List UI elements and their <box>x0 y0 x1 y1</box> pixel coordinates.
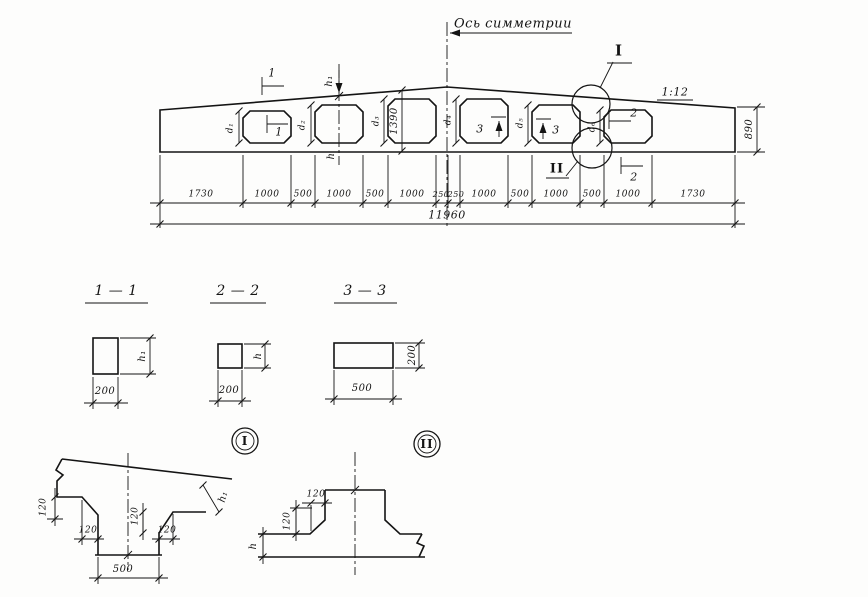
beam-drawing: Ось симметрии 1:12 I II 1 1 3 3 2 2 h₁ h… <box>0 0 868 597</box>
detail-2-break <box>417 534 424 557</box>
hole-dim-label-1: d₁ <box>227 123 236 133</box>
d2-height-label: h <box>249 543 259 550</box>
s11-width-label: 200 <box>95 387 116 397</box>
seg-dim-1: 1000 <box>255 191 280 200</box>
beam-outline-group <box>56 87 735 557</box>
mid-height-label: 1390 <box>390 107 400 134</box>
seg-dim-10: 1000 <box>544 191 569 200</box>
cut2-mark-bottom: 2 <box>630 172 638 183</box>
d2-h120-label: 120 <box>307 491 326 500</box>
section-2-2-title: 2 — 2 <box>216 284 259 298</box>
seg-dim-9: 500 <box>511 191 530 200</box>
detail-1-left-edge <box>56 459 98 555</box>
h1-dim-label: h₁ <box>325 75 335 86</box>
end-height-label: 890 <box>745 119 755 140</box>
seg-dim-2: 500 <box>294 191 313 200</box>
s11-height-label: h₁ <box>138 350 148 361</box>
section-3-3-title: 3 — 3 <box>343 284 386 298</box>
detail-1-top-chord <box>62 459 232 479</box>
beam-hole-6 <box>604 110 652 143</box>
cut3-mark-right: 3 <box>552 125 560 136</box>
s22-height-label: h <box>254 353 264 360</box>
hole-dim-label-3: d₃ <box>373 116 382 126</box>
seg-dim-4: 500 <box>366 191 385 200</box>
section-1-1-shape <box>93 338 118 374</box>
detail-2-right-edge <box>385 490 422 534</box>
section-3-3-shape <box>334 343 393 368</box>
seg-dim-11: 500 <box>583 191 602 200</box>
seg-dim-5: 1000 <box>400 191 425 200</box>
cut1-mark-top: 1 <box>268 68 276 79</box>
d1-v120b-label: 120 <box>132 507 141 526</box>
detail-2-badge-label: II <box>420 438 433 450</box>
d1-h120a-label: 120 <box>79 527 98 536</box>
hole-dim-label-6: d₆ <box>589 122 598 132</box>
d1-v120-label: 120 <box>40 498 49 517</box>
s33-height-label: 200 <box>408 345 418 366</box>
detail-2-extensions <box>263 500 332 564</box>
hole-dim-label-5: d₅ <box>517 118 526 128</box>
seg-dim-8: 1000 <box>472 191 497 200</box>
symmetry-axis-label: Ось симметрии <box>454 18 572 31</box>
detail-1-callout-label: I <box>615 44 623 59</box>
detail-1-badge-label: I <box>242 435 249 447</box>
section-2-2-shape <box>218 344 242 368</box>
detail-2-callout-label: II <box>550 163 564 176</box>
d1-h120b-label: 120 <box>158 527 177 536</box>
s33-width-label: 500 <box>352 384 373 394</box>
seg-dim-13: 1730 <box>681 191 706 200</box>
detail-leaders <box>566 62 613 176</box>
hole-dim-label-2: d₂ <box>299 120 308 130</box>
detail-2-circle <box>572 128 612 168</box>
d1-post-width-label: 500 <box>113 565 134 575</box>
cut-marks <box>262 77 643 174</box>
cut3-mark-left: 3 <box>476 124 484 135</box>
section-1-1-title: 1 — 1 <box>94 284 137 298</box>
seg-dim-0: 1730 <box>189 191 214 200</box>
slope-label: 1:12 <box>662 87 689 98</box>
seg-dim-3: 1000 <box>327 191 352 200</box>
d2-v120-label: 120 <box>284 512 293 531</box>
beam-hole-4 <box>460 99 508 143</box>
seg-dim-7: 250 <box>448 191 465 199</box>
s22-width-label: 200 <box>219 386 240 396</box>
dimension-linework <box>47 22 765 584</box>
cut1-mark-hole: 1 <box>275 127 283 138</box>
cut2-mark-hole: 2 <box>630 108 638 119</box>
total-length-label: 11960 <box>428 210 466 221</box>
hole-dim-label-4: d₄ <box>445 115 454 125</box>
seg-dim-12: 1000 <box>616 191 641 200</box>
detail-1-circle <box>572 85 610 123</box>
h-dim-label: h <box>327 153 337 160</box>
